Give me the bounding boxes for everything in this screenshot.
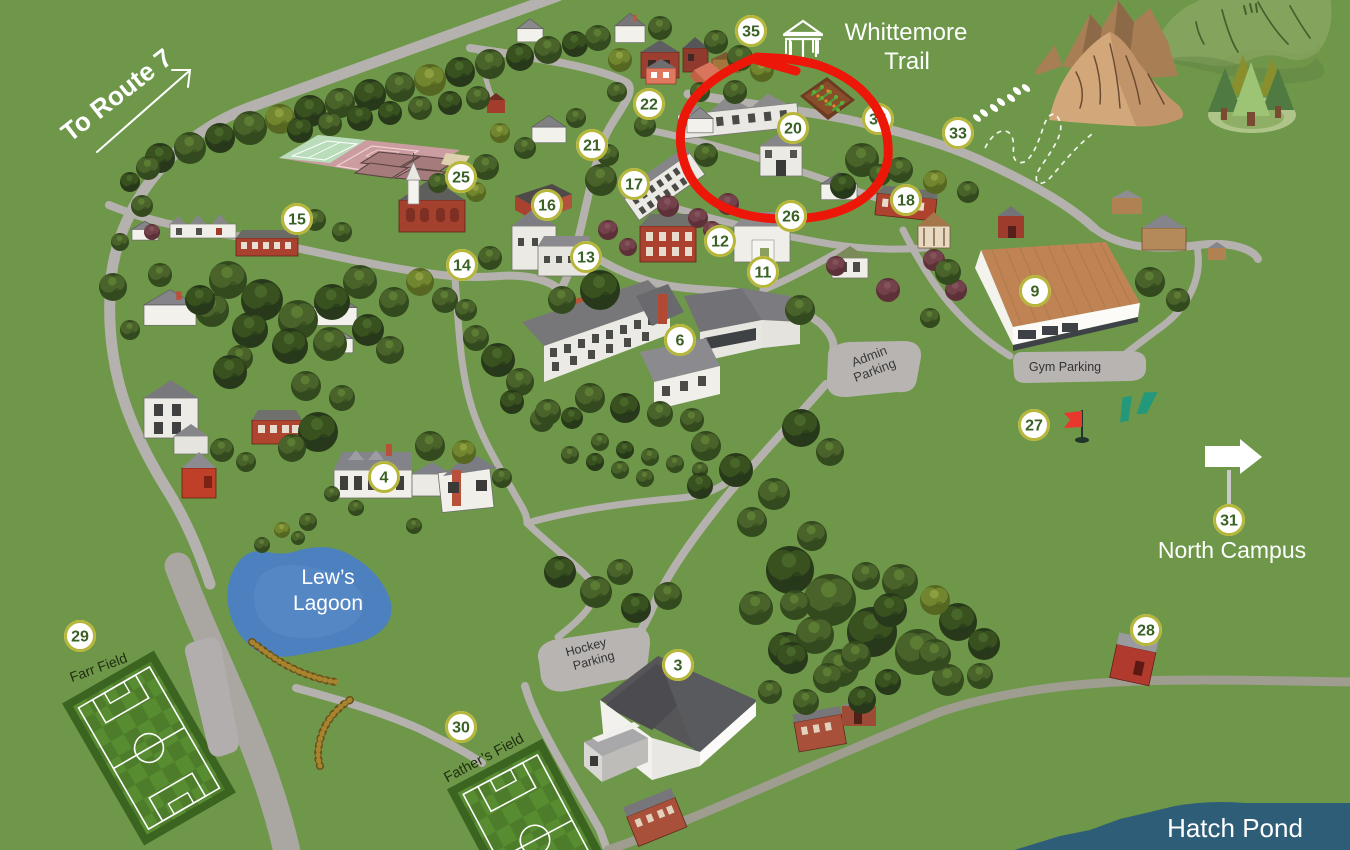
- svg-text:15: 15: [288, 212, 306, 229]
- svg-text:12: 12: [711, 234, 729, 251]
- svg-text:Lew’s: Lew’s: [301, 566, 354, 589]
- svg-text:27: 27: [1025, 418, 1043, 435]
- svg-text:33: 33: [949, 126, 967, 143]
- svg-text:3: 3: [674, 658, 683, 675]
- svg-text:Whittemore: Whittemore: [845, 19, 968, 46]
- svg-text:9: 9: [1031, 284, 1040, 301]
- svg-text:Lagoon: Lagoon: [293, 592, 363, 615]
- svg-text:16: 16: [538, 198, 556, 215]
- svg-text:30: 30: [452, 720, 470, 737]
- svg-text:11: 11: [755, 265, 772, 282]
- svg-text:28: 28: [1137, 623, 1155, 640]
- svg-text:29: 29: [71, 629, 89, 646]
- svg-text:4: 4: [380, 470, 389, 487]
- svg-text:14: 14: [453, 258, 471, 275]
- svg-text:35: 35: [742, 24, 760, 41]
- svg-text:17: 17: [625, 177, 643, 194]
- svg-text:Hatch Pond: Hatch Pond: [1167, 813, 1303, 843]
- svg-text:Trail: Trail: [884, 48, 930, 75]
- svg-text:25: 25: [452, 170, 470, 187]
- svg-text:22: 22: [640, 97, 658, 114]
- svg-text:North Campus: North Campus: [1158, 537, 1306, 563]
- svg-text:20: 20: [784, 121, 802, 138]
- svg-text:21: 21: [583, 138, 601, 155]
- svg-text:18: 18: [897, 193, 915, 210]
- svg-text:6: 6: [676, 333, 685, 350]
- svg-text:13: 13: [577, 250, 595, 267]
- svg-text:Gym Parking: Gym Parking: [1029, 360, 1101, 374]
- svg-text:31: 31: [1220, 513, 1238, 530]
- svg-text:26: 26: [782, 209, 800, 226]
